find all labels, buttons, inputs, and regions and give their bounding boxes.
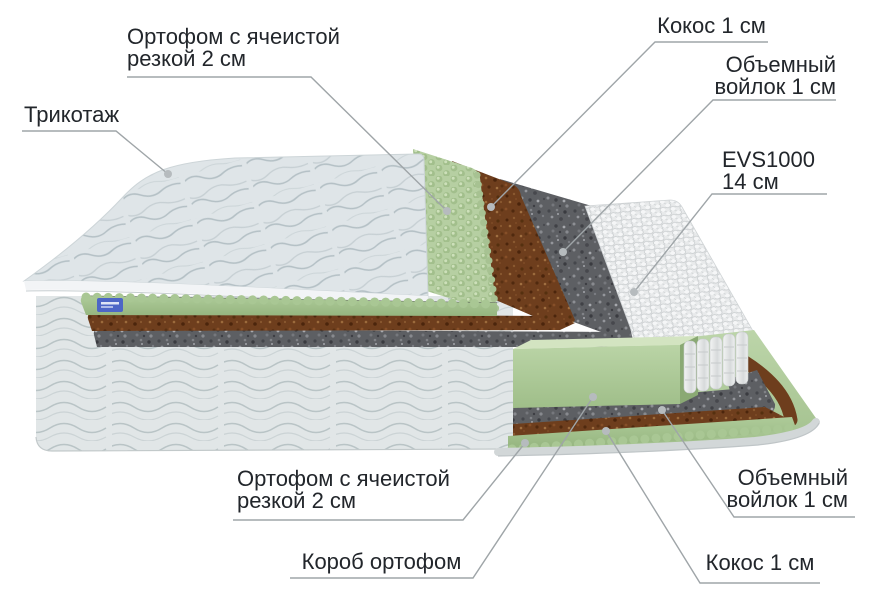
- label-eggcrate-top-line1: Ортофом с ячеистой: [127, 26, 340, 48]
- label-eggcrate-top: Ортофом с ячеистой резкой 2 см: [127, 26, 340, 70]
- label-coir-top: Кокос 1 см: [655, 15, 768, 37]
- label-springs: EVS1000 14 см: [722, 149, 815, 193]
- label-foam-box: Короб ортофом: [290, 551, 473, 573]
- label-coir-bottom: Кокос 1 см: [700, 552, 820, 574]
- label-knit-cover: Трикотаж: [24, 104, 119, 126]
- label-felt-top: Объемный войлок 1 см: [713, 54, 836, 98]
- knit-cover: [24, 154, 428, 307]
- label-eggcrate-top-line2: резкой 2 см: [127, 48, 340, 70]
- label-felt-bottom: Объемный войлок 1 см: [725, 467, 848, 511]
- foam-box-wall: [513, 336, 698, 408]
- mattress-cutaway-diagram: Ортофом с ячеистой резкой 2 см Трикотаж …: [0, 0, 874, 599]
- coir-front-strip: [88, 313, 575, 331]
- brand-tag: [97, 298, 123, 312]
- label-eggcrate-bottom: Ортофом с ячеистой резкой 2 см: [237, 468, 450, 512]
